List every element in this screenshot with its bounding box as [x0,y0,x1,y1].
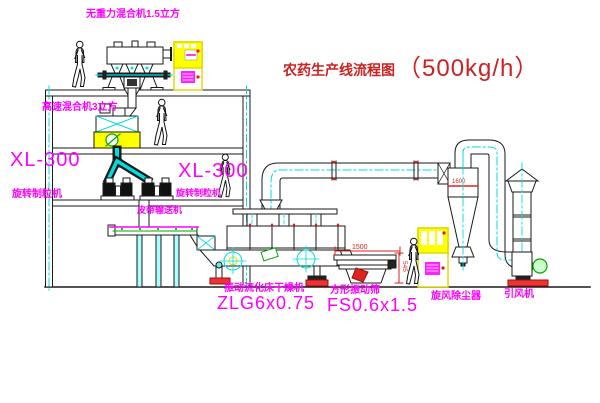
control-cabinet-top [174,42,202,90]
label-fan: 引风机 [504,290,534,300]
svg-text:1500: 1500 [352,244,368,251]
title-text: 农药生产线流程图 [283,60,395,83]
display-panel [181,71,195,83]
granulator-right [140,178,173,200]
label-gravity-mixer: 无重力混合机1.5立方 [86,10,180,20]
label-granulator-right-model: XL-300 [178,161,249,181]
flow-diagram-canvas: 1500 545 1600 [0,0,600,403]
label-granulator-left-model: XL-300 [10,150,81,170]
display-panel [425,262,440,275]
label-high-speed-mixer: 高速混合机3立方 [42,103,118,113]
label-dryer-model: ZLG6x0.75 [217,294,315,312]
dryer-exhaust-duct [260,161,462,214]
svg-text:1600: 1600 [452,179,466,185]
label-cyclone: 旋风除尘器 [431,292,481,302]
title-capacity: （500kg/h） [397,48,539,83]
worker-second-floor [155,99,168,145]
label-belt-conveyor: 皮带输送机 [137,206,182,215]
fluid-bed-dryer [197,209,358,286]
label-sieve-model: FS0.6x1.5 [327,296,418,314]
gravity-free-mixer [96,41,172,95]
svg-text:545: 545 [401,261,408,272]
worker-top-floor [73,41,86,87]
belt-conveyor [108,225,206,287]
diagram-title: 农药生产线流程图 （500kg/h） [283,48,539,83]
label-granulator-right-name: 旋转制粒机 [176,189,221,198]
label-granulator-left-name: 旋转制粒机 [12,190,62,200]
granulator-left [101,178,134,200]
control-cabinet-right [418,228,448,287]
induced-draft-fan [508,252,548,286]
